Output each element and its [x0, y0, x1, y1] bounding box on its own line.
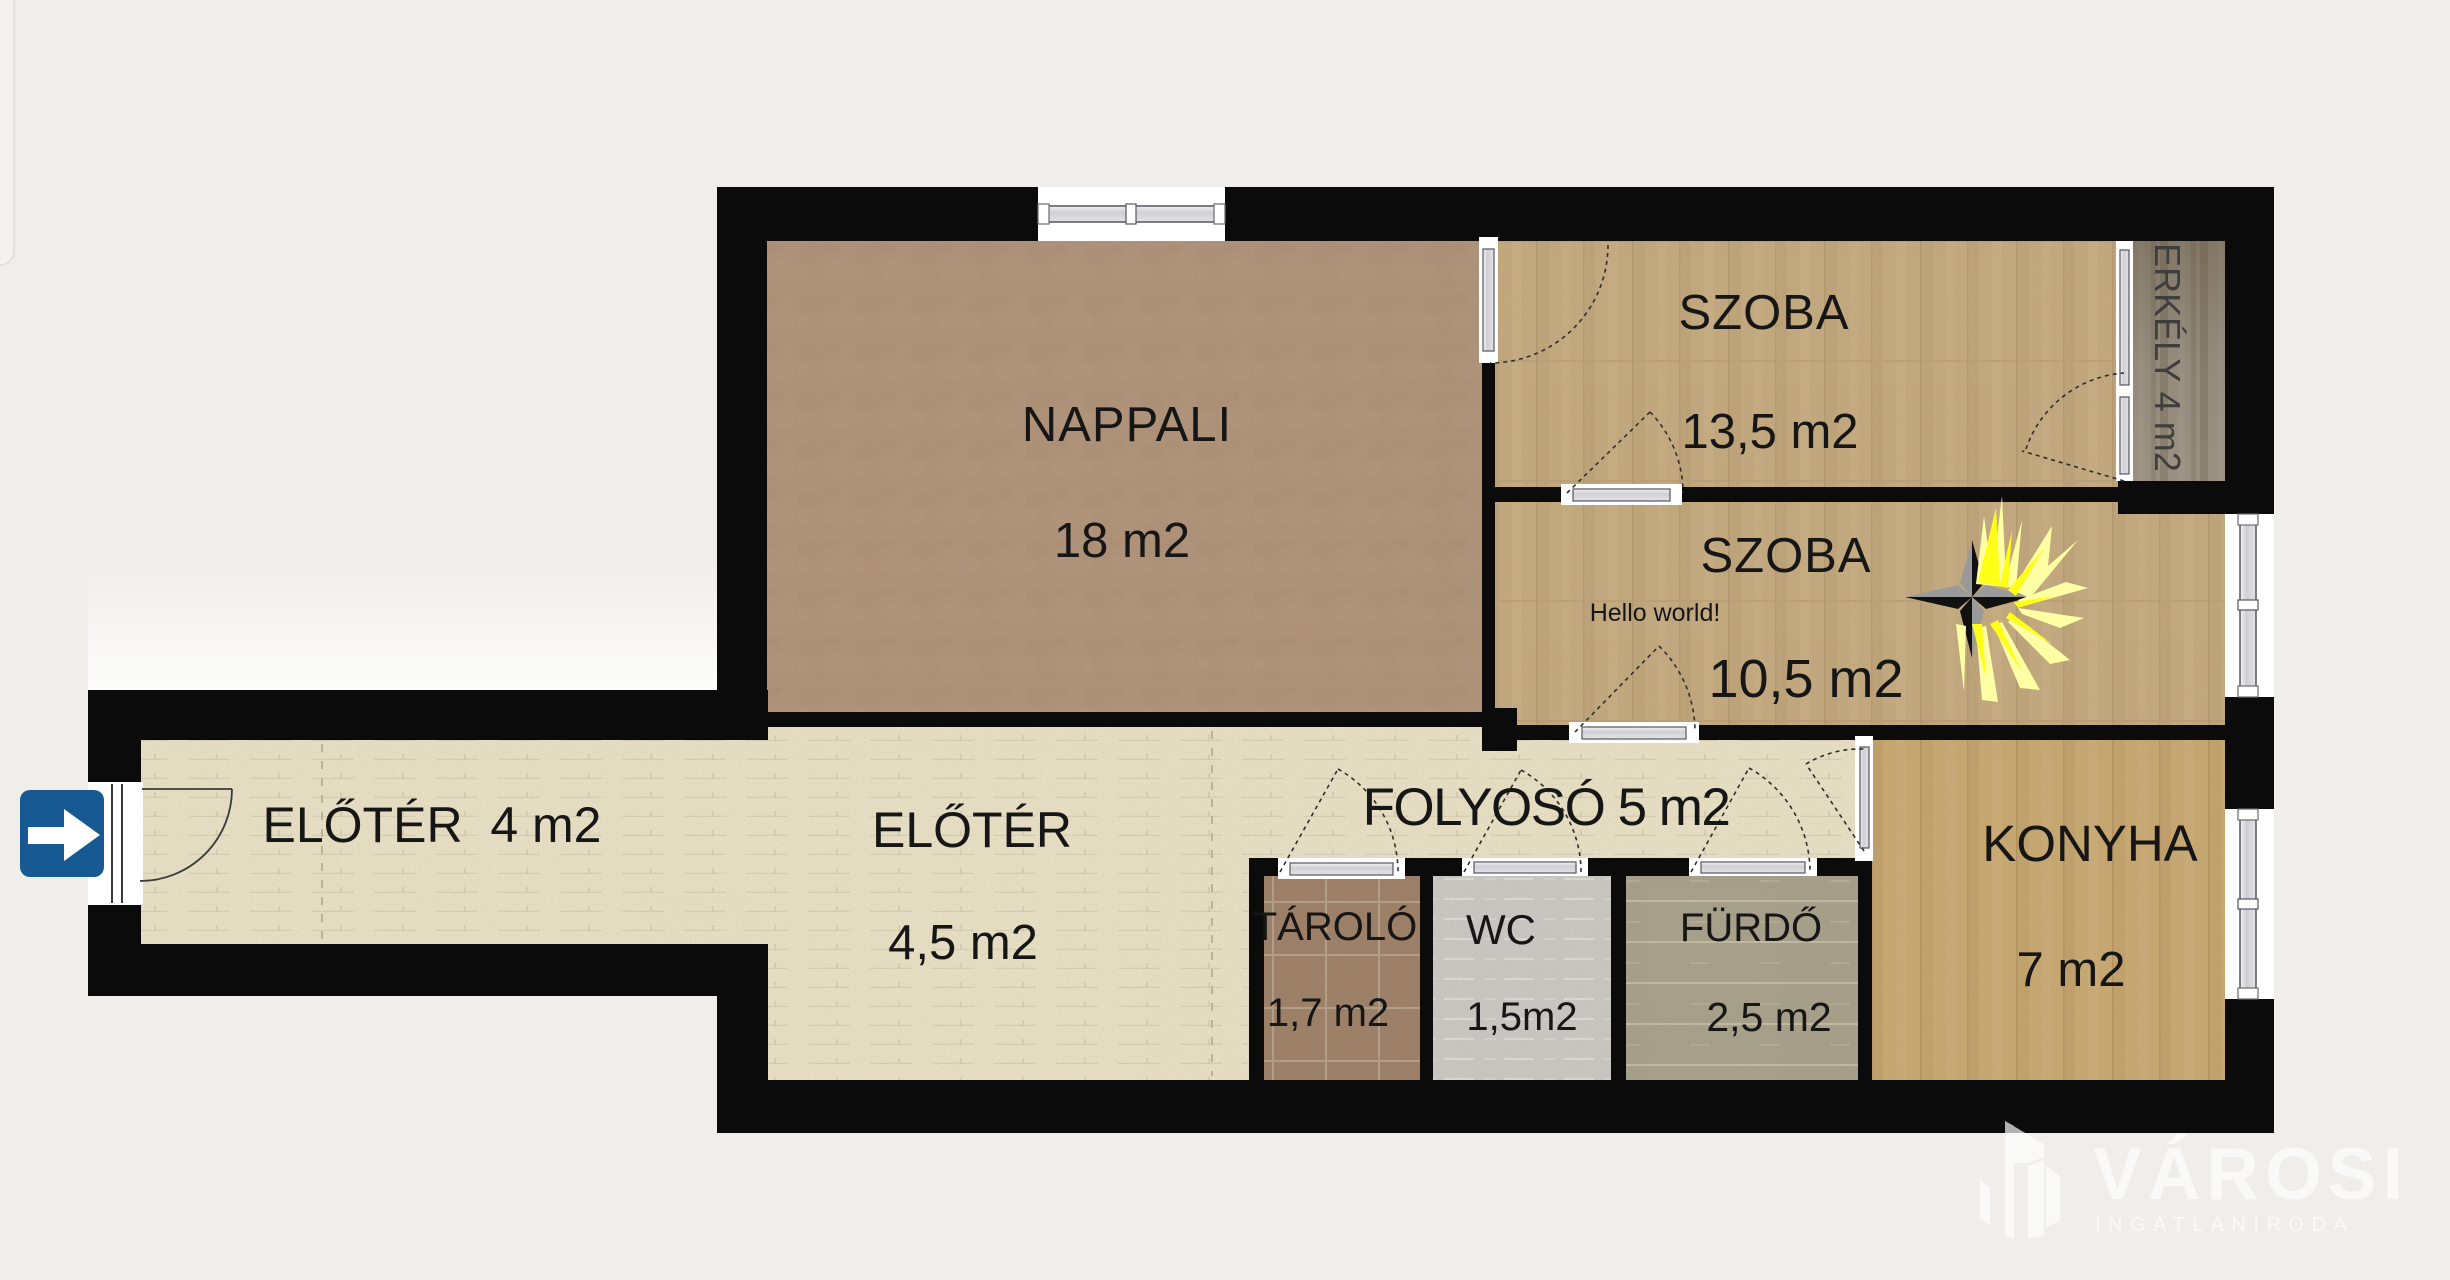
svg-text:SZOBA: SZOBA — [1700, 529, 1871, 583]
svg-text:TÁROLÓ: TÁROLÓ — [1253, 904, 1417, 949]
svg-text:FOLYOSÓ 5 m2: FOLYOSÓ 5 m2 — [1363, 778, 1730, 837]
svg-text:INGATLANIRODA: INGATLANIRODA — [2095, 1214, 2354, 1236]
svg-text:WC: WC — [1466, 906, 1536, 953]
svg-text:13,5 m2: 13,5 m2 — [1681, 405, 1858, 459]
svg-text:VÁROSI: VÁROSI — [2093, 1134, 2409, 1215]
svg-text:SZOBA: SZOBA — [1678, 286, 1849, 340]
svg-text:1,5m2: 1,5m2 — [1466, 995, 1577, 1039]
svg-text:ERKÉLY 4 m2: ERKÉLY 4 m2 — [2147, 243, 2188, 472]
svg-text:18 m2: 18 m2 — [1054, 514, 1190, 568]
svg-text:4,5 m2: 4,5 m2 — [888, 916, 1038, 970]
svg-text:10,5 m2: 10,5 m2 — [1708, 649, 1903, 709]
svg-text:ELŐTÉR: ELŐTÉR — [872, 802, 1072, 858]
svg-text:1,7 m2: 1,7 m2 — [1267, 991, 1389, 1035]
svg-text:KONYHA: KONYHA — [1982, 815, 2197, 872]
svg-text:NAPPALI: NAPPALI — [1022, 398, 1232, 452]
svg-text:ELŐTÉR 4 m2: ELŐTÉR 4 m2 — [263, 797, 602, 853]
svg-text:2,5 m2: 2,5 m2 — [1706, 994, 1831, 1040]
svg-text:FÜRDŐ: FÜRDŐ — [1680, 905, 1822, 950]
svg-text:Hello world!: Hello world! — [1590, 599, 1721, 627]
svg-text:7 m2: 7 m2 — [2017, 943, 2126, 997]
